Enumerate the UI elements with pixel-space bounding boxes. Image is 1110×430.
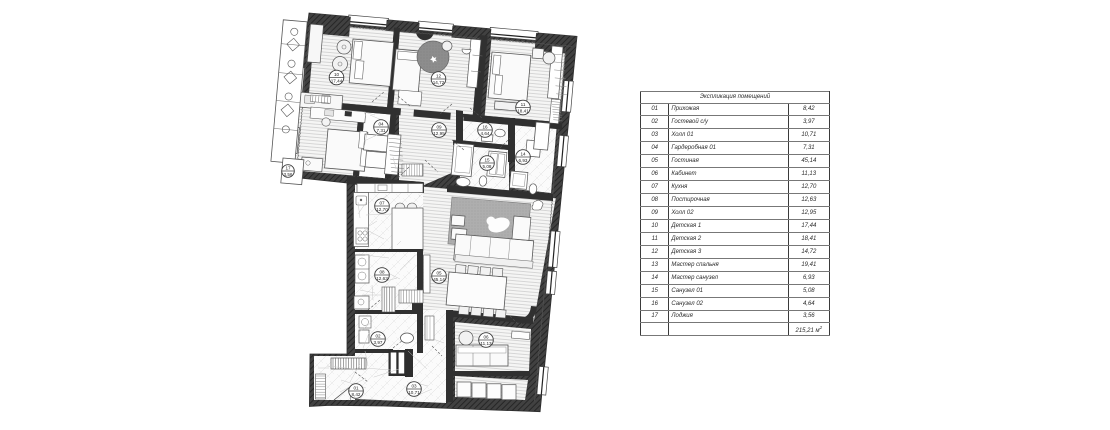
svg-text:02: 02 <box>375 334 381 339</box>
svg-text:7,31: 7,31 <box>377 128 386 133</box>
svg-text:17: 17 <box>285 166 291 171</box>
svg-text:12,70: 12,70 <box>376 207 388 212</box>
svg-text:12,95: 12,95 <box>433 131 445 136</box>
svg-text:11,13: 11,13 <box>480 341 492 346</box>
svg-text:10: 10 <box>334 72 340 77</box>
svg-text:14,72: 14,72 <box>433 80 445 85</box>
svg-text:05: 05 <box>436 271 442 276</box>
svg-text:45,14: 45,14 <box>433 277 445 282</box>
svg-text:07: 07 <box>379 201 385 206</box>
svg-text:4,64: 4,64 <box>481 131 490 136</box>
svg-text:09: 09 <box>436 125 442 130</box>
svg-text:08: 08 <box>379 270 385 275</box>
svg-text:10,71: 10,71 <box>408 390 420 395</box>
svg-text:11: 11 <box>521 102 526 107</box>
svg-text:12,63: 12,63 <box>376 276 388 281</box>
svg-text:04: 04 <box>378 122 384 127</box>
svg-text:03: 03 <box>411 384 417 389</box>
svg-text:3,56: 3,56 <box>284 172 293 177</box>
svg-text:15: 15 <box>484 158 490 163</box>
svg-text:17,44: 17,44 <box>331 79 343 84</box>
svg-text:01: 01 <box>353 386 359 391</box>
svg-text:18,41: 18,41 <box>517 109 529 114</box>
svg-text:5,08: 5,08 <box>483 164 492 169</box>
svg-text:8,42: 8,42 <box>352 392 361 397</box>
svg-text:12: 12 <box>436 74 442 79</box>
svg-text:6,93: 6,93 <box>519 158 528 163</box>
svg-text:3,97: 3,97 <box>374 340 383 345</box>
svg-text:06: 06 <box>483 335 489 340</box>
svg-text:14: 14 <box>520 152 526 157</box>
svg-text:16: 16 <box>482 125 488 130</box>
